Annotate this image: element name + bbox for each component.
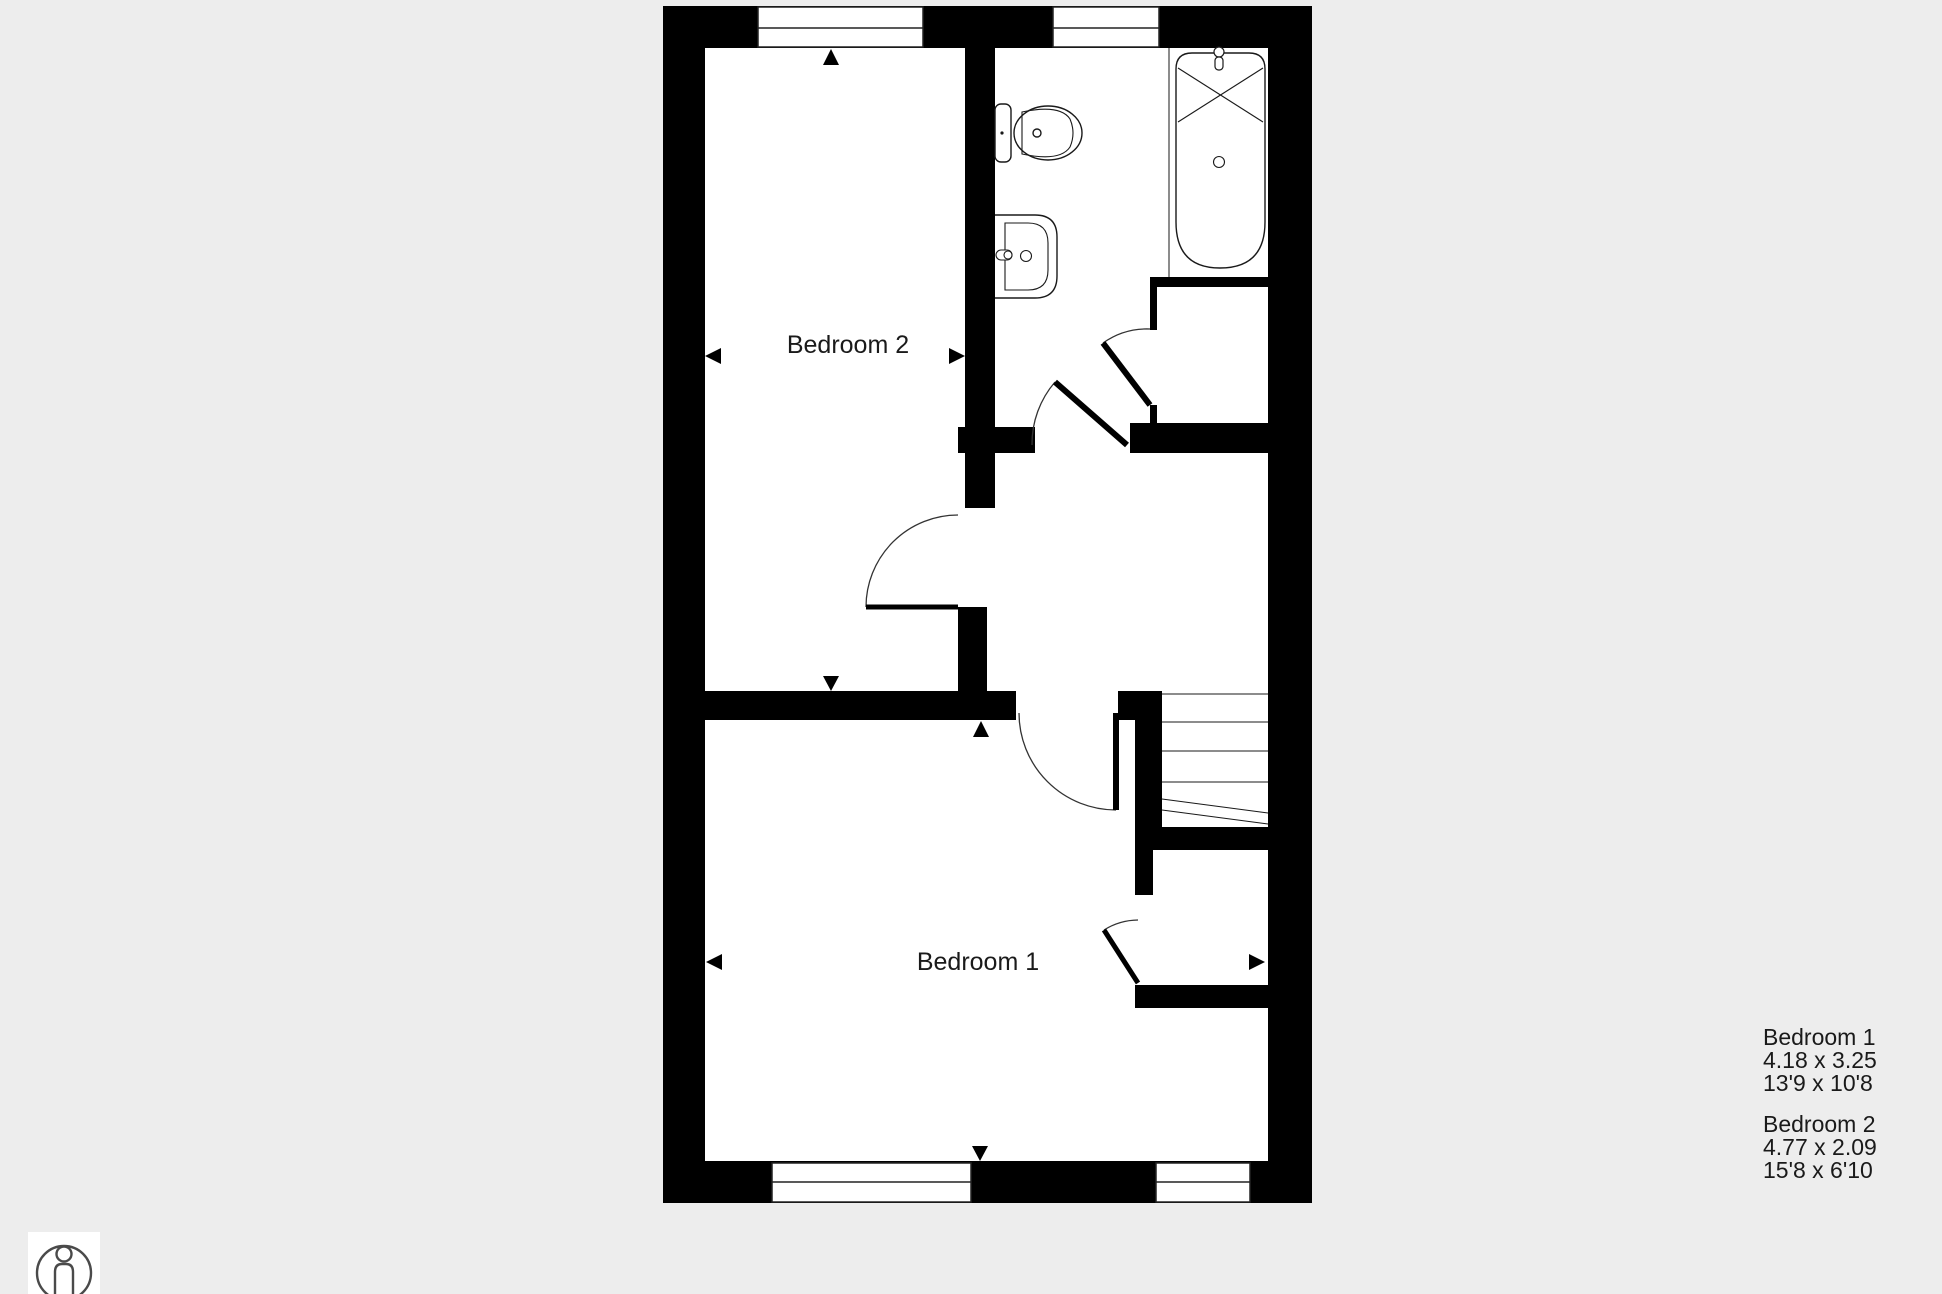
wall-divider-left [663,691,1016,720]
bathtub [1169,47,1265,277]
legend-bedroom1-imperial: 13'9 x 10'8 [1763,1070,1873,1096]
wall-under-tub [1150,277,1268,287]
wall-storage-west-jamb [1150,405,1157,427]
toilet [995,104,1082,162]
wall-bathroom-south-left [958,427,1035,453]
wall-storage-west-upper [1150,277,1157,330]
wall-closet-west [1135,850,1153,895]
window-top-bathroom [1053,7,1159,47]
legend: Bedroom 1 4.18 x 3.25 13'9 x 10'8 Bedroo… [1763,1024,1877,1183]
window-bottom-bedroom1-left [772,1163,971,1202]
floorplan-page: Bedroom 2 Bedroom 1 Bedroom 1 4.18 x 3.2… [0,0,1942,1294]
wall-right [1268,6,1312,1203]
floorplan-drawing: Bedroom 2 Bedroom 1 Bedroom 1 4.18 x 3.2… [0,0,1942,1294]
room-label-bedroom1: Bedroom 1 [917,948,1039,976]
window-bottom-bedroom1-right [1156,1163,1250,1202]
wall-divider-right [1118,691,1162,720]
window-top-bedroom2 [758,7,923,47]
sink [995,215,1057,298]
tub-drain [1214,157,1225,168]
wall-left [663,6,705,1203]
legend-bedroom2-imperial: 15'8 x 6'10 [1763,1157,1873,1183]
room-label-bedroom2: Bedroom 2 [787,331,909,359]
wall-bedroom2-east-lower [958,607,987,691]
wall-stairs-south [1135,827,1270,850]
wall-storage-south [1130,423,1270,453]
wall-closet-south [1135,985,1270,1008]
tub-faucet [1214,47,1224,57]
agency-logo [28,1232,100,1294]
